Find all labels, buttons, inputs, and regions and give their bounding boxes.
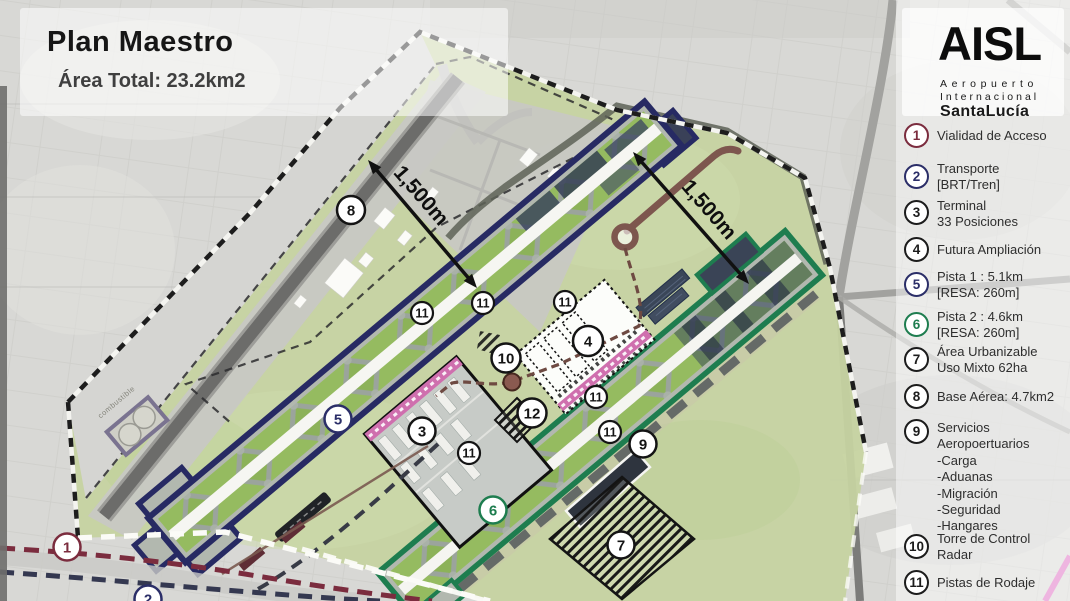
map-marker-6: 6 — [480, 497, 507, 524]
legend-marker-2: 2 — [904, 164, 929, 189]
svg-text:10: 10 — [498, 350, 515, 367]
svg-text:2: 2 — [144, 591, 152, 601]
map-marker-12: 12 — [518, 399, 547, 428]
legend-marker-3: 3 — [904, 200, 929, 225]
map-marker-1: 1 — [54, 534, 81, 561]
map-marker-4: 4 — [573, 326, 603, 356]
master-plan-screenshot: combustible 1,500m 1,500m 12345678910121… — [0, 0, 1070, 601]
legend-marker-9: 9 — [904, 419, 929, 444]
legend-marker-6: 6 — [904, 312, 929, 337]
legend-label-1: Vialidad de Acceso — [937, 128, 1067, 144]
legend-marker-11: 11 — [904, 570, 929, 595]
legend-label-2: Transporte[BRT/Tren] — [937, 161, 1067, 194]
map-marker-10: 10 — [492, 344, 521, 373]
svg-text:12: 12 — [524, 405, 541, 422]
map-marker-11: 11 — [585, 386, 607, 408]
svg-text:8: 8 — [347, 202, 355, 219]
map-marker-8: 8 — [337, 196, 365, 224]
map-marker-11: 11 — [554, 291, 576, 313]
map-marker-5: 5 — [325, 406, 352, 433]
map-marker-7: 7 — [608, 532, 635, 559]
svg-text:1: 1 — [63, 539, 71, 556]
legend-label-9: ServiciosAeropoertuarios-Carga-Aduanas-M… — [937, 420, 1067, 535]
map-marker-3: 3 — [409, 418, 436, 445]
legend-label-6: Pista 2 : 4.6km[RESA: 260m] — [937, 309, 1067, 342]
legend-marker-8: 8 — [904, 384, 929, 409]
logo-line-santalucia: SantaLucía — [940, 103, 1029, 121]
svg-text:11: 11 — [415, 307, 428, 321]
map-marker-11: 11 — [411, 302, 433, 324]
map-marker-2: 2 — [135, 586, 162, 601]
logo-line-internacional: Internacional — [940, 91, 1039, 103]
image-edge-strip — [0, 86, 7, 601]
legend-label-5: Pista 1 : 5.1km[RESA: 260m] — [937, 269, 1067, 302]
legend-label-7: Área UrbanizableUso Mixto 62ha — [937, 344, 1067, 377]
svg-text:6: 6 — [489, 502, 497, 519]
legend-label-4: Futura Ampliación — [937, 242, 1067, 258]
legend-panel: AISL Aeropuerto Internacional SantaLucía… — [896, 0, 1070, 601]
legend-marker-7: 7 — [904, 347, 929, 372]
legend-label-3: Terminal33 Posiciones — [937, 198, 1067, 231]
svg-text:11: 11 — [603, 426, 616, 440]
title-panel: Plan Maestro Área Total: 23.2km2 — [20, 8, 508, 116]
map-marker-11: 11 — [599, 421, 621, 443]
svg-text:9: 9 — [639, 436, 647, 453]
map-marker-9: 9 — [630, 431, 657, 458]
legend-label-11: Pistas de Rodaje — [937, 575, 1067, 591]
control-tower-dot — [504, 374, 521, 391]
svg-text:5: 5 — [334, 411, 342, 428]
svg-text:11: 11 — [462, 447, 475, 461]
total-area-subtitle: Área Total: 23.2km2 — [58, 70, 246, 93]
logo-line-aeropuerto: Aeropuerto — [940, 78, 1038, 90]
svg-text:7: 7 — [617, 537, 625, 554]
legend-label-8: Base Aérea: 4.7km2 — [937, 389, 1067, 405]
svg-text:11: 11 — [476, 297, 489, 311]
svg-text:11: 11 — [589, 391, 602, 405]
svg-text:3: 3 — [418, 423, 426, 440]
airport-logo: AISL Aeropuerto Internacional SantaLucía — [902, 8, 1064, 116]
page-title: Plan Maestro — [47, 26, 234, 59]
legend-marker-1: 1 — [904, 123, 929, 148]
svg-text:4: 4 — [584, 333, 593, 350]
legend-marker-4: 4 — [904, 237, 929, 262]
svg-text:11: 11 — [558, 296, 571, 310]
legend-marker-10: 10 — [904, 534, 929, 559]
roundabout — [615, 227, 636, 248]
legend-marker-5: 5 — [904, 272, 929, 297]
legend-label-10: Torre de ControlRadar — [937, 531, 1067, 564]
map-marker-11: 11 — [458, 442, 480, 464]
logo-acronym: AISL — [938, 16, 1041, 71]
map-marker-11: 11 — [472, 292, 494, 314]
